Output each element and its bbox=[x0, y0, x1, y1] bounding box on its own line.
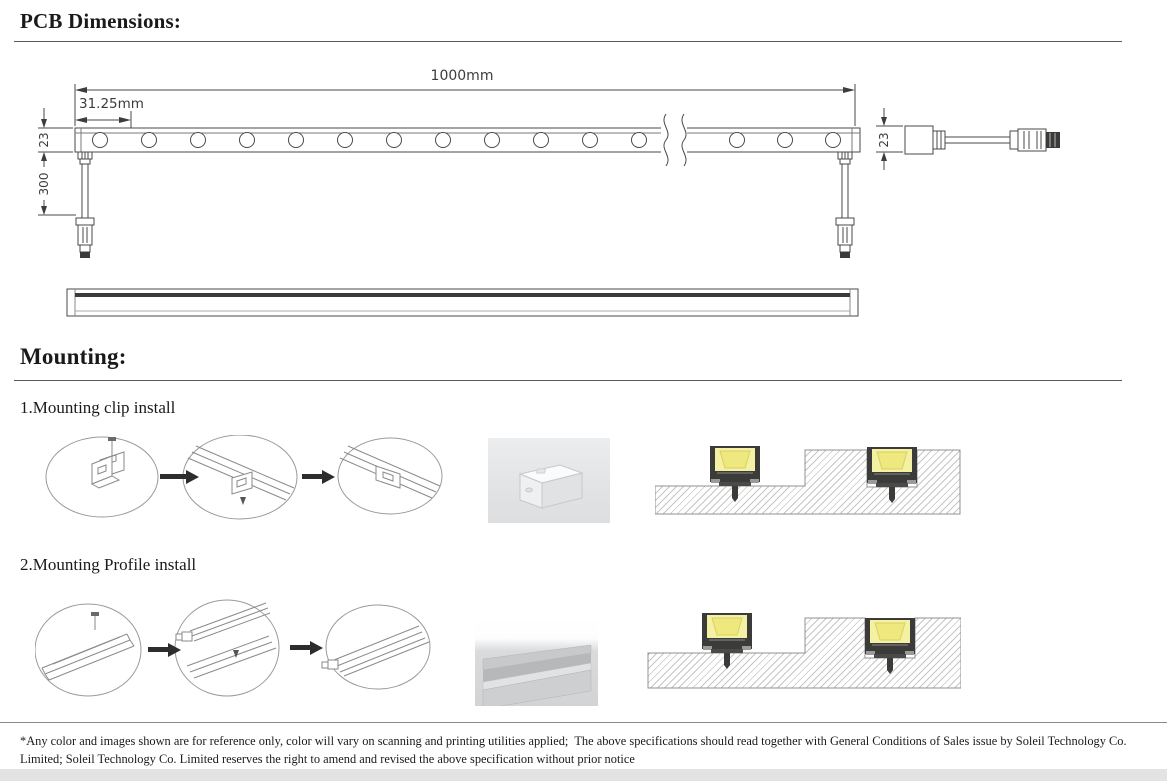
led-pitch-label: 31.25mm bbox=[79, 96, 144, 112]
pcb-dimensions-heading: PCB Dimensions: bbox=[20, 9, 181, 34]
mounting-step1-label: 1.Mounting clip install bbox=[20, 398, 175, 418]
led-profile-recessed bbox=[865, 618, 915, 674]
aluminum-profile-photo bbox=[475, 617, 598, 706]
end-view-right bbox=[876, 108, 1060, 170]
led-profile-recessed bbox=[867, 447, 917, 503]
cross-section-overlay bbox=[655, 438, 961, 516]
dimension-left-height-and-cable bbox=[38, 108, 76, 215]
sketch-clip-screw bbox=[92, 437, 124, 488]
total-length-label: 1000mm bbox=[431, 68, 494, 84]
arrow-step2-1 bbox=[148, 643, 181, 657]
footer-disclaimer-line1: *Any color and images shown are for refe… bbox=[20, 732, 1127, 750]
footer-rule bbox=[0, 722, 1167, 723]
sketch-bar-over-channel bbox=[176, 603, 276, 678]
bottom-gray-strip bbox=[0, 769, 1167, 781]
sketch-bar-in-channel bbox=[322, 626, 429, 676]
led-bar-side-view bbox=[67, 289, 858, 316]
pcb-dimension-drawing: 1000mm 31.25mm bbox=[0, 55, 1167, 320]
mounting-heading: Mounting: bbox=[20, 344, 127, 370]
arrow-step1-1 bbox=[160, 470, 199, 484]
mounting-step2-label: 2.Mounting Profile install bbox=[20, 555, 196, 575]
cross-section-overlay bbox=[635, 598, 961, 698]
arrow-step1-2 bbox=[302, 470, 335, 484]
sketch-clip-under-profile bbox=[188, 446, 294, 505]
footer-disclaimer-line2: Limited; Soleil Technology Co. Limited r… bbox=[20, 750, 635, 768]
pcb-heading-rule bbox=[14, 41, 1122, 42]
bar-height-right-label: 23 bbox=[877, 132, 891, 147]
cable-length-label: 300 bbox=[37, 173, 51, 196]
power-cable-left bbox=[76, 152, 94, 258]
bar-height-left-label: 23 bbox=[37, 132, 51, 147]
profile-install-cross-section bbox=[635, 598, 961, 698]
clip-photo-drawing bbox=[488, 438, 610, 523]
dimension-total-length bbox=[75, 84, 855, 126]
profile-photo-drawing bbox=[475, 617, 598, 706]
spec-sheet-page: PCB Dimensions: 1000mm 31.25mm bbox=[0, 0, 1167, 781]
clip-install-cross-section bbox=[655, 438, 961, 516]
clip-install-sketches bbox=[35, 435, 465, 530]
mounting-heading-rule bbox=[14, 380, 1122, 381]
power-cable-right bbox=[836, 152, 854, 258]
sketch-clip-mounted bbox=[340, 446, 440, 498]
led-profile-surface bbox=[710, 446, 760, 502]
led-profile-surface bbox=[702, 613, 752, 669]
mounting-clip-photo bbox=[488, 438, 610, 523]
led-bar-top-view bbox=[75, 114, 860, 166]
break-symbol bbox=[661, 114, 687, 166]
profile-install-sketches bbox=[35, 595, 465, 705]
dimension-led-pitch bbox=[75, 111, 131, 128]
arrow-step2-2 bbox=[290, 641, 323, 655]
sketch-channel-screw bbox=[42, 612, 134, 680]
